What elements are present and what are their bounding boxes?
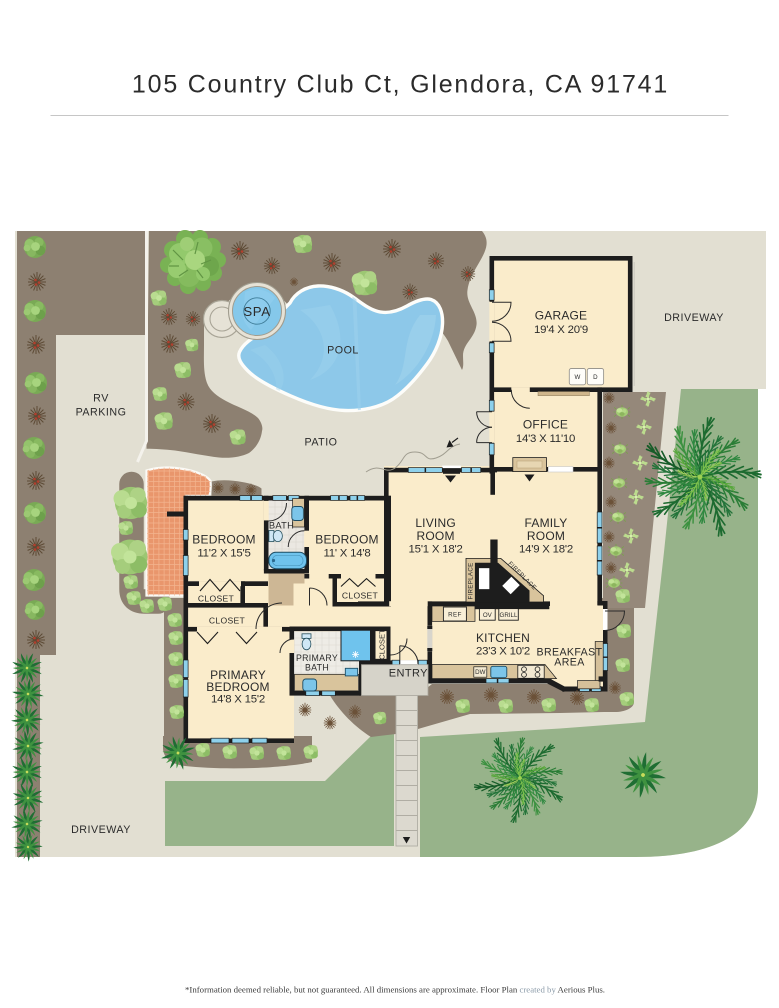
svg-text:DRIVEWAY: DRIVEWAY (71, 824, 131, 836)
svg-text:CLOSET: CLOSET (342, 591, 379, 601)
svg-text:SPA: SPA (243, 304, 270, 319)
svg-text:CLOSET: CLOSET (209, 616, 246, 626)
svg-text:14'8 X 15'2: 14'8 X 15'2 (211, 694, 265, 706)
svg-text:D: D (593, 374, 598, 381)
svg-text:ENTRY: ENTRY (389, 668, 428, 680)
svg-text:23'3 X 10'2: 23'3 X 10'2 (476, 646, 530, 658)
svg-text:11'2 X 15'5: 11'2 X 15'5 (197, 548, 250, 560)
svg-text:OFFICE: OFFICE (523, 418, 568, 432)
svg-text:105 Country Club Ct, Glendora,: 105 Country Club Ct, Glendora, CA 91741 (132, 71, 669, 99)
svg-text:PARKING: PARKING (76, 407, 127, 419)
svg-text:RV: RV (93, 393, 109, 405)
svg-text:BATH: BATH (305, 663, 329, 673)
svg-text:DRIVEWAY: DRIVEWAY (664, 312, 724, 324)
svg-text:CLOSET: CLOSET (198, 594, 235, 604)
svg-text:FAMILY: FAMILY (525, 516, 568, 530)
svg-text:ROOM: ROOM (417, 529, 455, 543)
svg-text:14'3 X 11'10: 14'3 X 11'10 (516, 433, 575, 445)
svg-text:*Information deemed reliable,: *Information deemed reliable, but not gu… (185, 985, 605, 995)
svg-text:W: W (574, 374, 580, 381)
svg-text:LIVING: LIVING (415, 516, 456, 530)
svg-text:BEDROOM: BEDROOM (192, 533, 255, 547)
svg-text:19'4 X 20'9: 19'4 X 20'9 (534, 324, 588, 336)
svg-text:OV: OV (483, 612, 493, 619)
svg-text:DW: DW (475, 669, 485, 676)
svg-text:REF: REF (448, 612, 462, 619)
svg-text:PRIMARY: PRIMARY (296, 653, 338, 663)
svg-text:BEDROOM: BEDROOM (206, 680, 269, 694)
svg-text:FIREPLACE: FIREPLACE (467, 562, 474, 599)
svg-text:BEDROOM: BEDROOM (315, 533, 378, 547)
svg-text:15'1 X 18'2: 15'1 X 18'2 (409, 544, 463, 556)
svg-text:BATH: BATH (269, 521, 294, 531)
svg-text:GARAGE: GARAGE (535, 309, 588, 323)
svg-text:AREA: AREA (554, 657, 585, 669)
svg-text:PATIO: PATIO (305, 437, 338, 449)
svg-text:POOL: POOL (327, 345, 359, 357)
svg-text:11' X 14'8: 11' X 14'8 (323, 548, 370, 560)
svg-text:KITCHEN: KITCHEN (476, 631, 530, 645)
svg-text:ROOM: ROOM (527, 529, 565, 543)
svg-text:14'9 X 18'2: 14'9 X 18'2 (519, 544, 573, 556)
svg-text:GRILL: GRILL (500, 612, 518, 619)
svg-text:CLOSET: CLOSET (378, 629, 387, 660)
